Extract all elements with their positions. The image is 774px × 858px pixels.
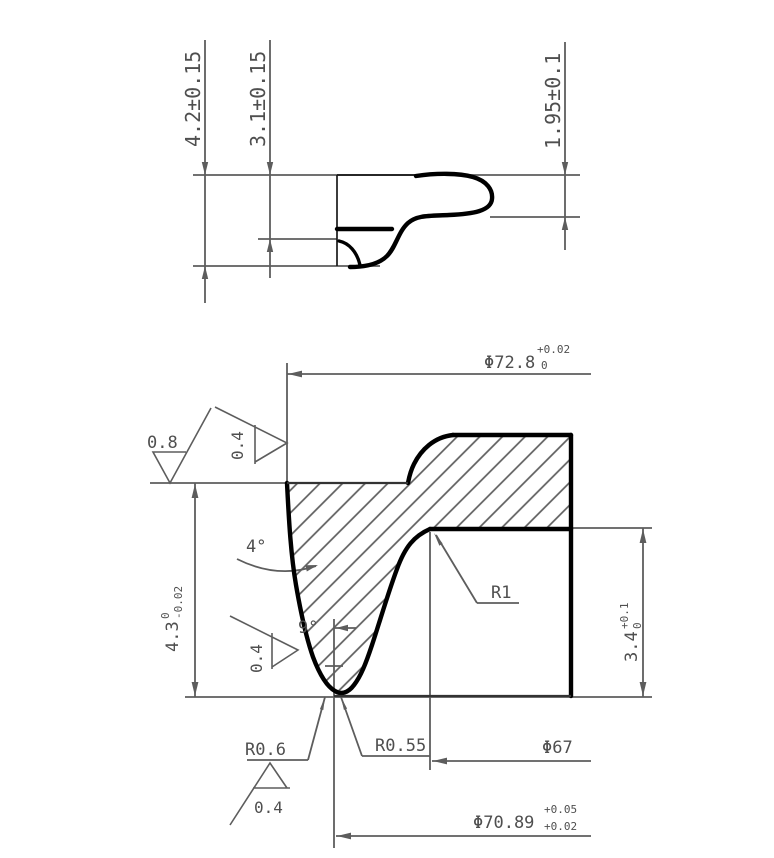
angle-9deg: 9° bbox=[298, 618, 318, 638]
roughness-outer-value: 0.8 bbox=[147, 433, 178, 453]
top-view-dimension-text: 4.2±0.15 3.1±0.15 1.95±0.1 bbox=[181, 51, 565, 149]
dim-4-3-lower-tol: -0.02 bbox=[172, 586, 185, 619]
r1-leader bbox=[436, 535, 477, 603]
top-view-arrowheads bbox=[202, 162, 568, 279]
engineering-drawing: 4.2±0.15 3.1±0.15 1.95±0.1 bbox=[0, 0, 774, 858]
dim-4-3: 4.3 bbox=[163, 621, 183, 652]
bottom-view-reference-lines bbox=[150, 363, 652, 848]
profile-inner-arc bbox=[339, 241, 360, 265]
drawing-svg: 4.2±0.15 3.1±0.15 1.95±0.1 bbox=[0, 0, 774, 858]
dim-3-4-upper-tol: +0.1 bbox=[618, 603, 631, 630]
dia-72-8-upper-tol: +0.02 bbox=[537, 343, 570, 356]
bottom-view: Φ72.8 +0.02 0 0.8 0.4 0.4 0.4 4° 9° 4.3 … bbox=[147, 343, 652, 848]
radius-r0-55: R0.55 bbox=[375, 736, 426, 756]
roughness-od-value: 0.4 bbox=[228, 431, 247, 460]
profile-s-curve bbox=[350, 174, 492, 267]
dim-3-4-group: 3.4 +0.1 0 bbox=[618, 603, 644, 663]
dim-3-4: 3.4 bbox=[622, 631, 642, 662]
dim-3-1: 3.1±0.15 bbox=[246, 51, 270, 147]
dim-1-95: 1.95±0.1 bbox=[541, 53, 565, 149]
roughness-flank-value: 0.4 bbox=[247, 644, 266, 673]
roughness-groove-value: 0.4 bbox=[254, 798, 283, 817]
radius-r1: R1 bbox=[491, 583, 511, 603]
dia-70-89: Φ70.89 bbox=[473, 813, 534, 833]
dim-3-4-lower-tol: 0 bbox=[631, 622, 644, 629]
dia-72-8-lower-tol: 0 bbox=[541, 359, 548, 372]
radius-r0-6: R0.6 bbox=[245, 740, 286, 760]
dim-4-2: 4.2±0.15 bbox=[181, 51, 205, 147]
section-hatch-area bbox=[287, 435, 571, 693]
dia-70-89-upper-tol: +0.05 bbox=[544, 803, 577, 816]
dim-4-3-upper-tol: 0 bbox=[159, 612, 172, 619]
top-view: 4.2±0.15 3.1±0.15 1.95±0.1 bbox=[181, 40, 580, 303]
bottom-view-arrowheads bbox=[192, 371, 647, 840]
dia-67: Φ67 bbox=[542, 738, 573, 758]
dim-4-3-group: 4.3 0 -0.02 bbox=[159, 586, 185, 652]
dia-70-89-lower-tol: +0.02 bbox=[544, 820, 577, 833]
roughness-symbol-od bbox=[215, 407, 287, 464]
dia-72-8: Φ72.8 bbox=[484, 353, 535, 373]
angle-4deg: 4° bbox=[246, 537, 266, 557]
seal-profile-top bbox=[337, 174, 492, 267]
